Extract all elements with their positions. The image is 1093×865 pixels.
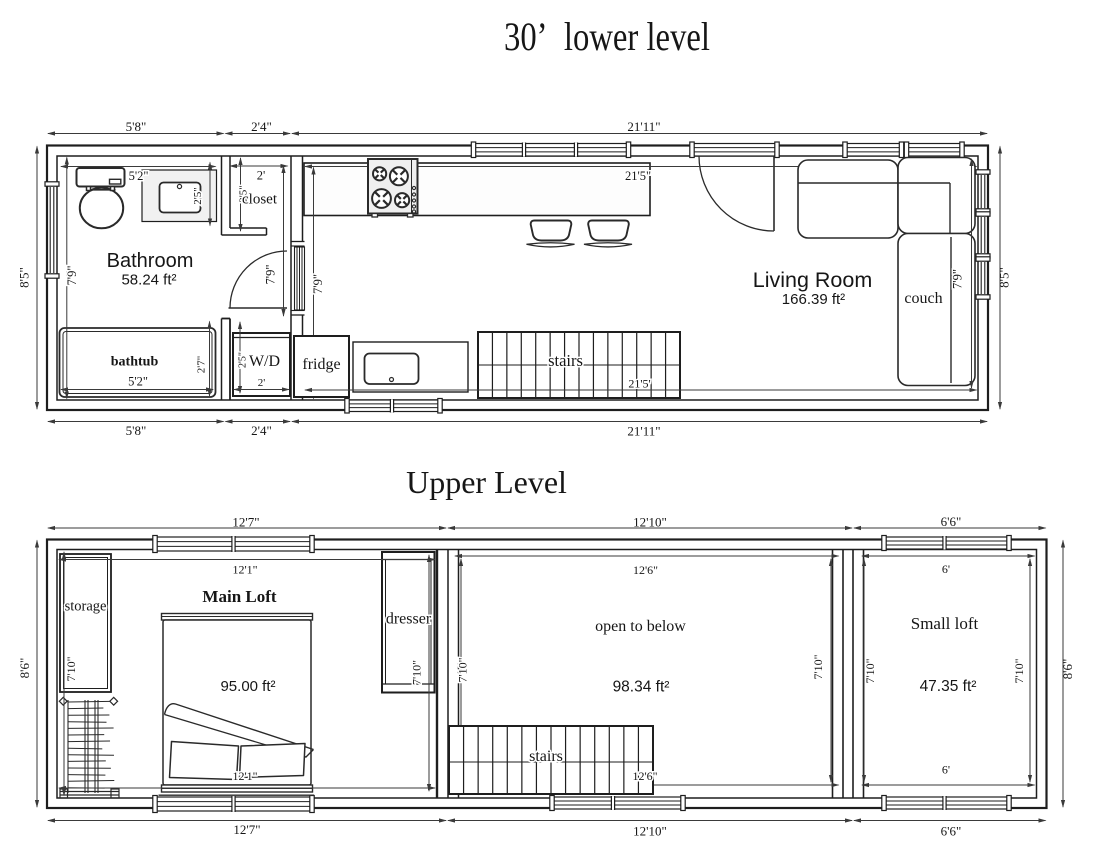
svg-text:21'11": 21'11" [627,424,660,439]
svg-text:2'4": 2'4" [251,119,272,134]
svg-text:open to below: open to below [595,618,686,635]
svg-text:12'10": 12'10" [633,515,667,530]
svg-text:storage: storage [65,599,107,615]
svg-text:95.00 ft²: 95.00 ft² [220,678,275,695]
svg-text:2'4": 2'4" [251,423,272,438]
svg-text:2'7": 2'7" [196,356,208,373]
svg-text:12'1": 12'1" [232,769,257,783]
svg-text:7'10": 7'10" [863,658,877,683]
svg-text:7'9": 7'9" [65,266,79,286]
svg-text:7'9": 7'9" [311,274,325,294]
svg-text:W/D: W/D [249,353,280,370]
svg-text:7'10": 7'10" [64,656,78,681]
svg-text:8'5": 8'5" [17,267,32,288]
svg-text:12'7": 12'7" [233,822,260,837]
svg-text:6': 6' [942,562,950,576]
svg-text:12'6": 12'6" [633,563,658,577]
svg-text:bathtub: bathtub [111,355,159,370]
svg-text:Upper Level: Upper Level [406,464,567,500]
svg-text:7'10": 7'10" [1012,658,1026,683]
svg-text:47.35 ft²: 47.35 ft² [920,678,977,695]
svg-text:dresser: dresser [386,611,432,628]
svg-text:8'6": 8'6" [1060,659,1075,680]
svg-text:2'5": 2'5" [238,352,249,368]
svg-text:7'9": 7'9" [951,269,965,289]
svg-text:closet: closet [242,192,278,208]
svg-text:21'5": 21'5" [625,169,651,183]
svg-text:6': 6' [942,763,950,777]
svg-text:Small loft: Small loft [911,614,979,633]
svg-text:7'10": 7'10" [456,657,470,682]
svg-text:fridge: fridge [302,356,340,373]
svg-text:stairs: stairs [529,748,563,765]
svg-text:2': 2' [257,169,266,183]
svg-text:stairs: stairs [548,351,583,370]
svg-text:12'1": 12'1" [232,563,257,577]
svg-text:12'10": 12'10" [633,824,667,839]
svg-text:58.24 ft²: 58.24 ft² [121,272,176,289]
svg-text:5'2": 5'2" [129,169,149,183]
svg-text:30’ lower level: 30’ lower level [504,14,710,59]
svg-text:5'8": 5'8" [126,119,147,134]
svg-text:21'11": 21'11" [627,119,660,134]
svg-text:98.34 ft²: 98.34 ft² [613,679,670,696]
svg-text:couch: couch [904,290,942,307]
svg-text:7'10": 7'10" [811,654,825,679]
svg-text:21'5': 21'5' [628,377,650,391]
svg-text:Living Room: Living Room [753,268,873,292]
svg-text:8'6": 8'6" [17,658,32,679]
svg-text:6'6": 6'6" [941,514,962,529]
svg-text:7'9": 7'9" [264,265,278,285]
svg-text:Main Loft: Main Loft [202,587,276,606]
svg-text:6'6": 6'6" [941,824,962,839]
svg-text:Bathroom: Bathroom [107,250,194,272]
svg-text:166.39 ft²: 166.39 ft² [782,291,845,308]
svg-text:7'10": 7'10" [410,660,424,685]
svg-text:2': 2' [258,377,266,389]
svg-text:12'7": 12'7" [232,515,259,530]
svg-text:2'5": 2'5" [192,187,204,204]
svg-text:5'8": 5'8" [126,423,147,438]
svg-text:12'6": 12'6" [632,769,657,783]
svg-text:5'2": 5'2" [128,375,148,389]
svg-text:8'5": 8'5" [997,267,1012,288]
